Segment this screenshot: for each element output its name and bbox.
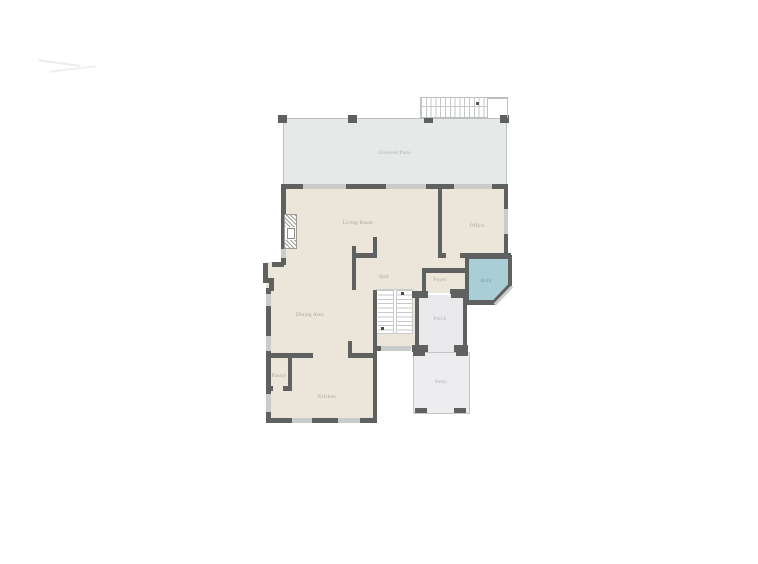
room-living-office bbox=[283, 187, 506, 257]
label-dining-area: Dining Area bbox=[296, 312, 324, 317]
wall-segment bbox=[422, 268, 426, 293]
wall-segment bbox=[422, 268, 467, 273]
stair-direction-dot bbox=[401, 292, 404, 295]
room-porch bbox=[415, 295, 467, 352]
wall-segment bbox=[460, 253, 511, 258]
label-pantry: Pantry bbox=[272, 373, 287, 378]
patio-post bbox=[456, 350, 468, 356]
patio-post bbox=[413, 350, 425, 356]
stair-divider bbox=[393, 290, 397, 333]
wall-segment bbox=[348, 341, 352, 353]
wall-segment bbox=[415, 298, 419, 345]
stair-center-line bbox=[420, 106, 488, 107]
wall-segment bbox=[288, 357, 292, 389]
label-bath: Bath bbox=[481, 278, 492, 283]
window-segment bbox=[454, 184, 492, 189]
fireplace-firebox bbox=[287, 228, 295, 239]
wall-segment bbox=[373, 290, 377, 422]
label-foyer: Foyer bbox=[433, 277, 446, 282]
watermark-scribble bbox=[50, 65, 96, 73]
window-segment bbox=[386, 184, 426, 189]
fireplace-hatch-bottom bbox=[285, 240, 296, 248]
column-post bbox=[348, 115, 357, 123]
label-living-room: Living Room bbox=[343, 220, 373, 225]
window-segment bbox=[303, 184, 346, 189]
window-segment bbox=[266, 294, 271, 306]
wall-segment bbox=[312, 418, 338, 423]
stair-railing bbox=[488, 97, 508, 99]
chimney-step bbox=[272, 262, 284, 267]
label-kitchen: Kitchen bbox=[318, 394, 336, 399]
window-segment bbox=[381, 346, 411, 351]
wall-segment bbox=[373, 237, 377, 257]
column-post bbox=[278, 115, 287, 123]
wall-segment bbox=[266, 386, 273, 391]
porch-post bbox=[412, 291, 428, 298]
wall-segment bbox=[438, 253, 446, 258]
wall-segment bbox=[266, 306, 271, 336]
wall-segment bbox=[463, 298, 467, 345]
window-segment bbox=[266, 394, 271, 412]
wall-segment bbox=[346, 184, 386, 189]
patio-post bbox=[454, 408, 466, 413]
window-segment bbox=[292, 418, 312, 423]
stair-direction-dot bbox=[476, 102, 479, 105]
floor-plan-canvas: Covered Patio Living Room Office Hall Fo… bbox=[0, 0, 758, 564]
patio-post bbox=[415, 408, 427, 413]
label-hall: Hall bbox=[379, 274, 389, 279]
window-segment bbox=[504, 209, 509, 234]
stair-flight bbox=[397, 290, 412, 333]
stair-direction-dot bbox=[381, 327, 384, 330]
fireplace-hatch-top bbox=[285, 215, 296, 227]
wall-segment bbox=[283, 386, 292, 391]
label-porch: Porch bbox=[433, 316, 446, 321]
window-segment bbox=[266, 336, 271, 351]
wall-segment bbox=[266, 418, 292, 423]
label-office: Office bbox=[470, 223, 484, 228]
label-covered-patio: Covered Patio bbox=[379, 150, 411, 155]
window-segment bbox=[281, 249, 286, 258]
window-segment bbox=[338, 418, 360, 423]
label-patio: Patio bbox=[435, 379, 447, 384]
wall-segment bbox=[438, 188, 442, 253]
stair-railing bbox=[507, 97, 509, 118]
watermark-scribble bbox=[38, 59, 80, 67]
wall-segment bbox=[352, 253, 356, 290]
porch-post bbox=[451, 291, 468, 298]
staircase-exterior bbox=[420, 97, 488, 118]
wall-segment bbox=[504, 188, 509, 209]
